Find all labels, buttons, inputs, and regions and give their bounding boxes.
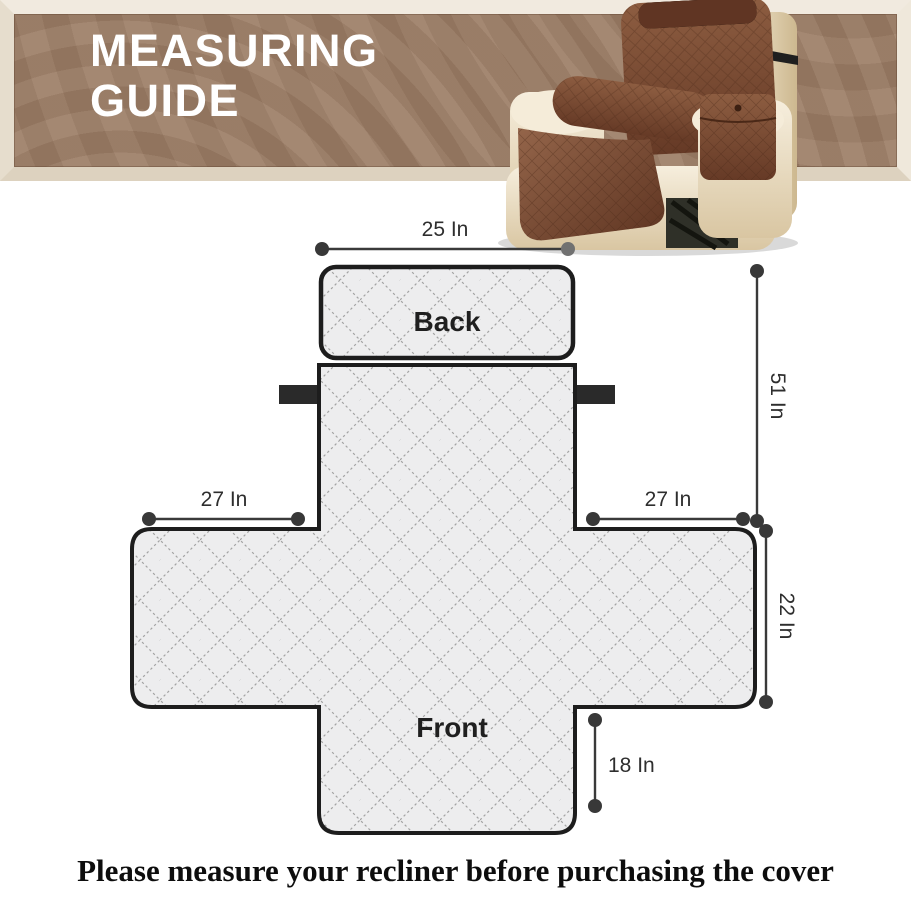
dim-dot [750,264,764,278]
dim-dot [561,242,575,256]
dim-cover-length-label: 51 In [766,373,789,420]
dim-seat-side-label: 22 In [775,593,798,640]
dim-left-arm-label: 27 In [201,488,248,511]
dim-dot [588,799,602,813]
dim-dot [736,512,750,526]
dim-front-drop-label: 18 In [608,754,655,777]
dim-dot [759,524,773,538]
measuring-diagram: Back Front 25 In 51 In 27 In 27 In 22 In… [0,0,911,911]
right-strap [573,385,615,404]
dim-dot [142,512,156,526]
dim-dot [315,242,329,256]
dim-dot [586,512,600,526]
left-strap [279,385,321,404]
dim-right-arm-label: 27 In [645,488,692,511]
dim-dot [588,713,602,727]
cover-main-piece [132,365,755,833]
back-label: Back [414,306,481,337]
dim-dot [759,695,773,709]
front-label: Front [416,712,488,743]
dim-dot [291,512,305,526]
footer-instruction: Please measure your recliner before purc… [0,845,911,897]
dim-back-width-label: 25 In [422,218,469,241]
